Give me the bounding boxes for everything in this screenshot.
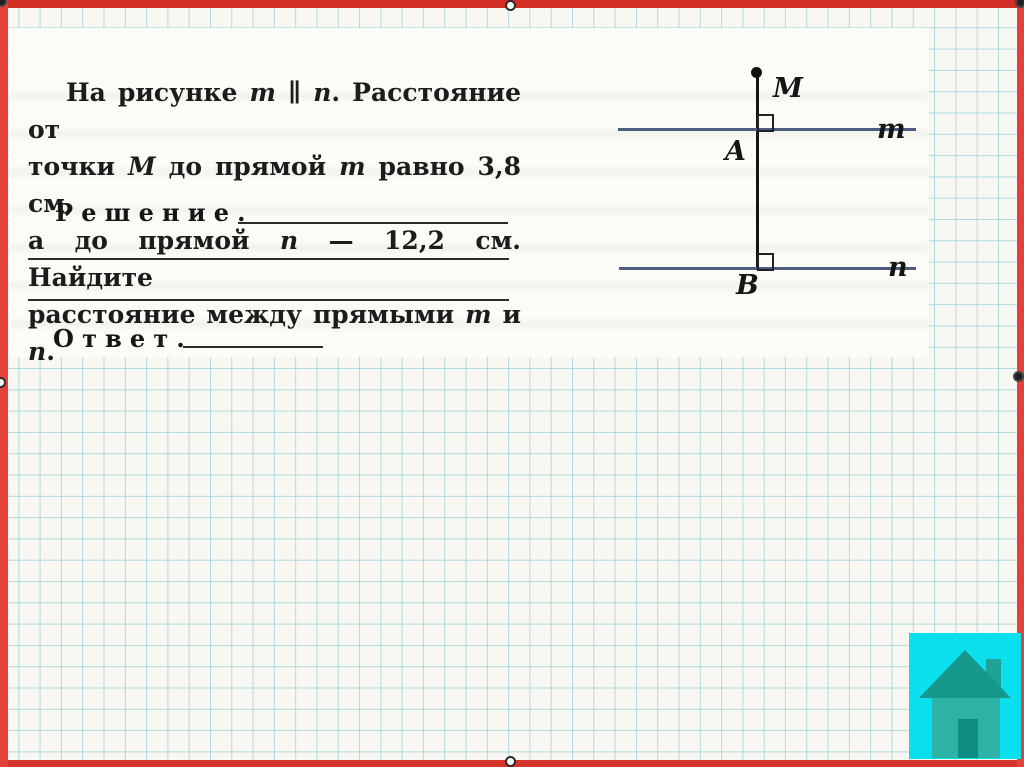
point-b-label: B <box>736 272 759 299</box>
right-angle-mark-a <box>757 114 774 132</box>
point-m-label: M <box>773 75 803 102</box>
home-button[interactable] <box>909 633 1021 759</box>
solution-row: Решение. <box>55 198 254 227</box>
resize-handle-top-center[interactable] <box>505 0 516 11</box>
answer-row: Ответ. <box>53 324 193 353</box>
answer-blank-line <box>183 346 323 348</box>
point-m-dot <box>751 67 762 78</box>
solution-label: Решение. <box>55 198 254 227</box>
solution-blank-line-3 <box>28 299 509 301</box>
worksheet-card: На рисунке m ∥ n. Расстояние отточки M д… <box>9 28 929 357</box>
solution-blank-line-1 <box>238 222 508 224</box>
resize-handle-bottom-center[interactable] <box>505 756 516 767</box>
door-shape <box>958 719 978 758</box>
resize-handle-top-right[interactable] <box>1015 0 1024 8</box>
resize-handle-right-middle[interactable] <box>1013 371 1024 382</box>
point-a-label: A <box>725 138 746 165</box>
line-n-label: n <box>888 254 908 281</box>
right-angle-mark-b <box>757 253 774 271</box>
slide-canvas: На рисунке m ∥ n. Расстояние отточки M д… <box>0 0 1024 767</box>
line-m-label: m <box>877 116 906 143</box>
solution-blank-line-2 <box>28 258 509 260</box>
answer-label: Ответ. <box>53 324 193 353</box>
perpendicular-segment <box>756 72 759 270</box>
